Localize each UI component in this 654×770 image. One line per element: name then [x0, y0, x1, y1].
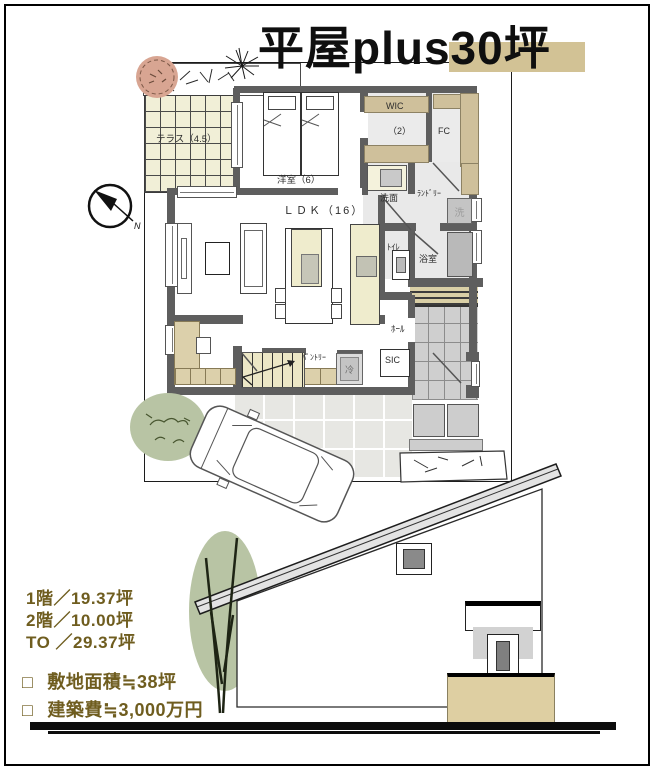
bed-pillow	[306, 96, 334, 110]
label-bath: 浴室	[419, 252, 437, 265]
wall	[408, 278, 483, 287]
note-site-area: □敷地面積≒38坪	[22, 668, 176, 694]
island-sink	[301, 254, 319, 284]
fridge-inner: 冷	[340, 357, 359, 381]
cooktop	[356, 256, 377, 277]
ground-line	[30, 722, 616, 730]
ground-line-thin	[48, 731, 600, 734]
label-wic-size: （2）	[388, 124, 411, 137]
chair	[275, 304, 286, 319]
label-terrace: テラス（4.5）	[156, 131, 217, 145]
label-bedroom: 洋室（6）	[277, 172, 320, 186]
label-pantry: ﾊﾟﾝﾄﾘｰ	[302, 352, 326, 363]
bed-pillow	[268, 96, 296, 110]
chair	[331, 288, 342, 303]
label-fc: FC	[438, 126, 450, 136]
chair	[275, 288, 286, 303]
label-laundry: ﾗﾝﾄﾞﾘｰ	[417, 188, 441, 199]
toilet-bowl	[396, 257, 406, 273]
label-wic: WIC	[386, 101, 404, 111]
wall	[440, 223, 470, 231]
washing-machine: 洗	[447, 198, 472, 224]
note-build-cost: □建築費≒3,000万円	[22, 696, 203, 722]
fridge-label: 冷	[345, 363, 354, 376]
driveway-tiles	[233, 392, 412, 479]
label-toilet: ﾄｲﾚ	[387, 241, 400, 253]
note-site-text: 敷地面積≒38坪	[47, 672, 176, 692]
study-counter	[174, 368, 236, 385]
vanity-sink	[380, 169, 402, 187]
window	[231, 102, 243, 168]
terrace-window	[177, 186, 237, 198]
chair	[331, 304, 342, 319]
washer-label: 洗	[455, 204, 465, 219]
wic-shelf	[364, 145, 429, 163]
checkbox-bullet: □	[22, 700, 33, 721]
wall	[408, 160, 415, 194]
floor-plan-page: 平屋plus30坪	[0, 0, 654, 770]
fc-shelf	[460, 93, 479, 167]
wall	[469, 290, 477, 352]
wall	[383, 223, 416, 231]
entrance-door	[471, 361, 480, 387]
page-title: 平屋plus30坪	[258, 12, 551, 78]
checkbox-bullet: □	[22, 672, 33, 693]
entrance-door-elevation	[496, 641, 510, 671]
deck-slats	[410, 287, 478, 307]
door-opening	[408, 318, 415, 342]
label-sic: SIC	[385, 355, 400, 365]
elevation-window	[403, 549, 425, 569]
bathtub	[447, 232, 473, 277]
label-hall: ﾎｰﾙ	[391, 322, 405, 335]
staircase	[241, 352, 305, 388]
pantry-shelf	[302, 368, 339, 385]
area-total: TO ／29.37坪	[26, 628, 136, 653]
step-stone	[409, 439, 483, 451]
wall	[167, 387, 415, 395]
coffee-table	[205, 242, 230, 275]
tv-screen	[181, 238, 187, 279]
step-stone	[413, 404, 445, 437]
sofa-seat	[244, 230, 263, 287]
laundry-shelf	[461, 163, 479, 195]
wall	[466, 352, 479, 361]
wall	[408, 295, 415, 392]
step-stone	[447, 404, 479, 437]
label-ldk: ＬＤＫ（16）	[283, 202, 364, 218]
study-chair	[196, 337, 211, 354]
door-opening	[360, 112, 368, 138]
note-cost-text: 建築費≒3,000万円	[47, 700, 203, 720]
door-opening	[338, 188, 362, 195]
label-washroom: 洗面	[380, 191, 398, 204]
